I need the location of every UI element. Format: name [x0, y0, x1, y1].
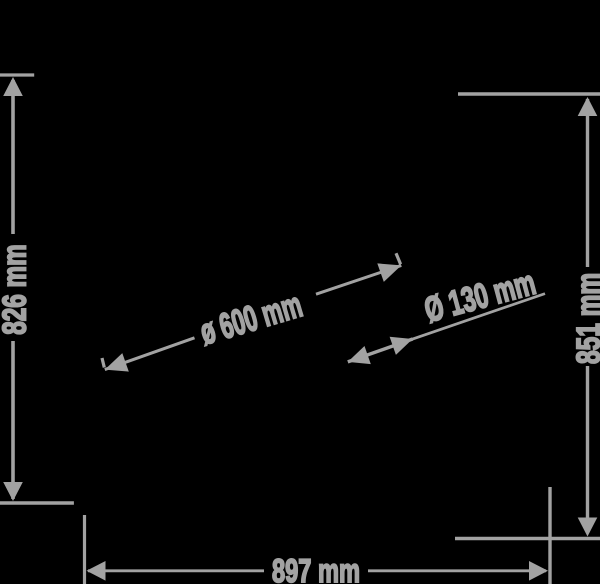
- svg-text:826 mm: 826 mm: [0, 244, 33, 335]
- svg-text:Ø 130 mm: Ø 130 mm: [420, 263, 539, 330]
- svg-text:ø 600 mm: ø 600 mm: [195, 284, 306, 353]
- svg-text:897 mm: 897 mm: [272, 552, 360, 584]
- svg-text:851 mm: 851 mm: [570, 273, 600, 364]
